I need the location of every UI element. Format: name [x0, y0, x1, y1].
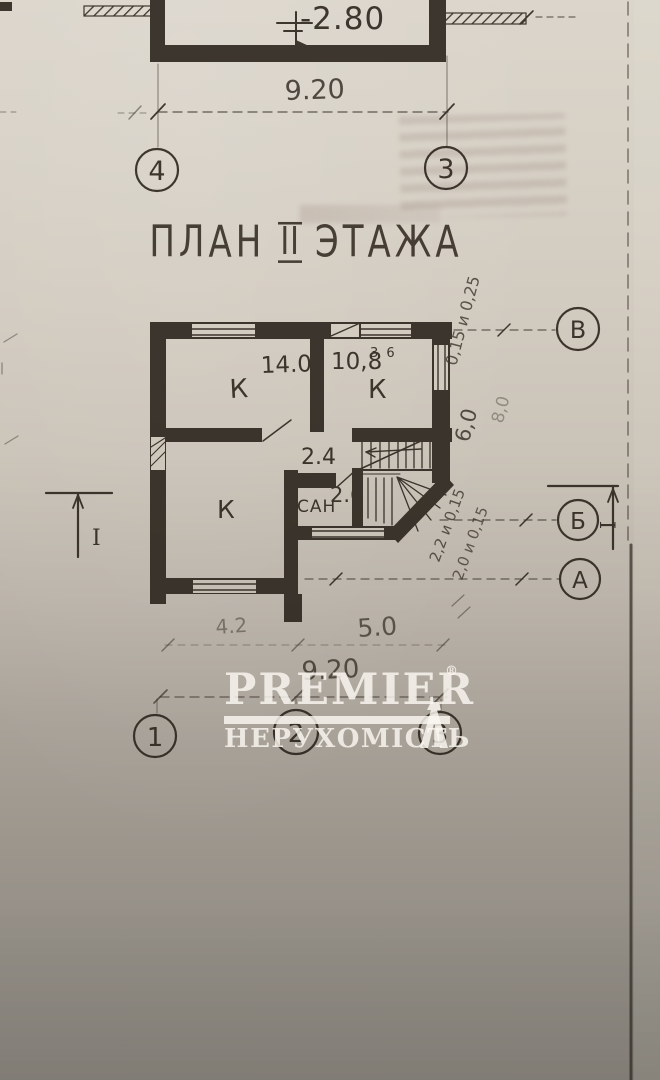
axis-a: А [572, 568, 588, 594]
upper-dimension-line [0, 56, 454, 147]
room-tr-label: К [368, 375, 386, 405]
axis-circle-4: 4 [136, 149, 178, 191]
watermark-divider [224, 716, 450, 724]
hall-area: 2.4 [301, 445, 336, 470]
section-label-left: I [92, 526, 101, 551]
registered-trademark-icon: ® [445, 665, 458, 678]
plan-title: ПЛАН II ЭТАЖА [158, 213, 454, 272]
svg-text:4: 4 [148, 156, 165, 187]
axis-circle-3-top: 3 [425, 147, 467, 189]
plan-title-storey-numeral: II [278, 222, 302, 264]
plan-title-word2: ЭТАЖА [315, 217, 463, 268]
axis-b: Б [570, 509, 586, 535]
floorplan-drawing: -2.80 9.20 4 3 [0, 0, 660, 1080]
plan-title-word1: ПЛАН [149, 217, 265, 268]
san-area: 2.6 [330, 483, 363, 507]
room-tl-area: 14.0 [260, 351, 312, 379]
svg-text:3: 3 [437, 154, 454, 185]
room-tr-area-sup: 3 6 [370, 346, 397, 361]
svg-text:1: 1 [147, 723, 164, 753]
premier-watermark: PREMIER ® НЕРУХОМІСТЬ [224, 669, 452, 752]
scanned-floorplan-photo: -2.80 9.20 4 3 [0, 0, 660, 1080]
paper-edge-strip [634, 0, 660, 1080]
axis-v: В [570, 316, 586, 344]
level-mark: -2.80 [300, 1, 385, 37]
compass-figure-icon [418, 702, 452, 748]
section-mark-left: I [46, 493, 112, 557]
axis-circle-1: 1 [134, 715, 176, 757]
room-bl-label: К [217, 495, 235, 524]
dim-right: 5.0 [356, 611, 398, 643]
note-80: 8,0 [488, 394, 514, 425]
note-60: 6,0 [450, 406, 482, 444]
dim-left: 4.2 [215, 613, 248, 639]
note-015-025: 0,15 и 0,25 [442, 274, 484, 368]
upper-width-dim: 9.20 [284, 74, 345, 107]
room-tl-label: К [229, 374, 249, 405]
section-label-right: I [595, 521, 619, 529]
